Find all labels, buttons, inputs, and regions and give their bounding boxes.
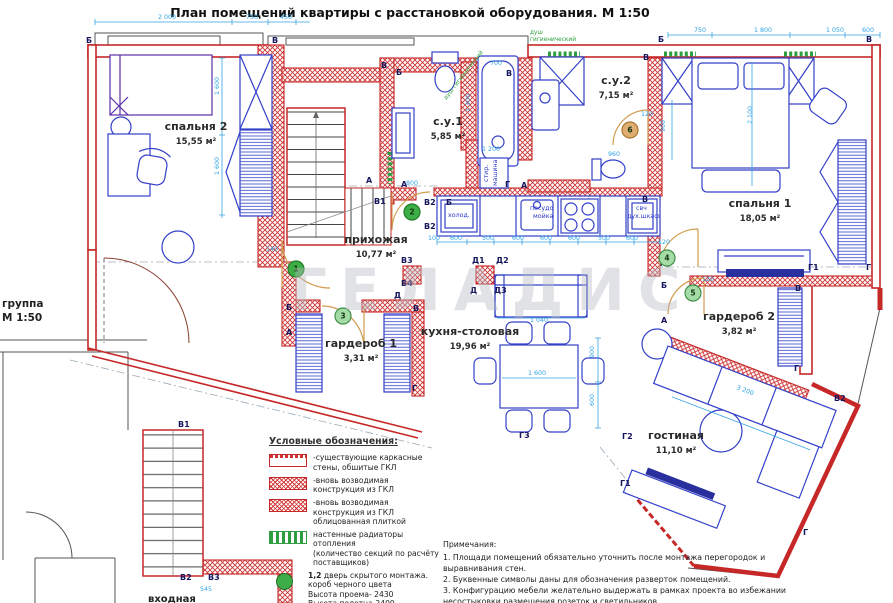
floor-plan-drawing: спальня 215,55 м²с.у.15,85 м²с.у.27,15 м…: [0, 0, 893, 603]
bench-sofa: [495, 275, 587, 317]
door-description: дверь скрытого монтажа. короб черного цв…: [308, 571, 428, 603]
room-name: прихожая: [344, 233, 407, 246]
room-name: спальня 2: [165, 120, 228, 133]
toilet-tank-2: [592, 159, 601, 180]
section-marker: В: [381, 61, 387, 70]
dimension-label: 600: [862, 27, 874, 34]
dimension-label: 600: [540, 235, 552, 242]
legend-item-new-gkl-tiled: -вновь возводимая конструкция из ГКЛ обл…: [269, 498, 445, 526]
fixture-label: душ: [530, 30, 543, 36]
dimension-label: 900: [660, 120, 667, 132]
fixture-label: дух.шкаф: [627, 213, 660, 220]
notes-heading: Примечания:: [443, 540, 805, 551]
fixture-label: свч: [636, 205, 647, 212]
section-marker: Б: [86, 36, 92, 45]
section-marker: А: [286, 328, 293, 337]
room-name: кухня-столовая: [421, 325, 519, 338]
tv-console-living: [623, 463, 728, 529]
section-marker: В1: [178, 420, 190, 429]
fixture-label: гигиенический: [530, 36, 576, 43]
notes: Примечания: 1. Площади помещений обязате…: [443, 540, 805, 603]
wardrobe1-right: [384, 314, 410, 392]
dimension-label: 600: [512, 235, 524, 242]
sink-1: [392, 108, 414, 158]
swatch-existing-wall: [269, 454, 307, 467]
fixture-label: стир.: [483, 165, 490, 182]
dimension-label: 1 600: [214, 77, 221, 95]
section-marker: Б: [286, 303, 292, 312]
dimension-label: 120: [641, 111, 653, 118]
swatch-new-gkl: [269, 477, 307, 490]
section-marker: В: [506, 69, 512, 78]
note-item: 2. Буквенные символы даны для обозначени…: [443, 575, 805, 586]
room-area: 10,77 м²: [356, 250, 397, 260]
floor-plan-page: План помещений квартиры с расстановкой о…: [0, 0, 893, 603]
dimension-label: 750: [694, 27, 706, 34]
section-marker: Г: [803, 528, 808, 537]
door-tag: 6: [622, 122, 638, 138]
door-tag: 5: [685, 285, 701, 301]
door-tag: 1: [288, 261, 304, 277]
dimension-label: 1 050: [826, 27, 844, 34]
section-marker: В: [413, 304, 419, 313]
dimension-label: 600: [626, 235, 638, 242]
legend-heading: Условные обозначения:: [269, 436, 445, 447]
section-marker: В2: [180, 573, 192, 582]
room-name: с.у.1: [433, 115, 463, 128]
balcony-door-arc: [104, 258, 189, 343]
room-area: 15,55 м²: [176, 137, 217, 147]
dimension-label: 1 040: [530, 317, 548, 324]
dimension-label: 960: [608, 151, 620, 158]
dimension-label: 2 000: [158, 14, 176, 21]
dimension-label: 100: [428, 235, 440, 242]
door-badge-dark: [276, 573, 293, 590]
dimension-label: 450: [280, 14, 292, 21]
door-numbers-bold: 1,2: [308, 571, 321, 580]
section-marker: В: [795, 284, 801, 293]
dimension-label: 500: [598, 235, 610, 242]
svg-text:3: 3: [340, 312, 345, 321]
wardrobe-bedroom1: [838, 140, 866, 264]
section-marker: Г1: [808, 263, 819, 272]
section-marker: В: [866, 35, 872, 44]
note-item: 3. Конфигурацию мебели желательно выдерж…: [443, 586, 805, 603]
section-marker: Г: [412, 384, 417, 393]
dimension-label: 800: [406, 180, 418, 187]
section-marker: В2: [424, 198, 436, 207]
section-marker: Б: [658, 35, 664, 44]
room-area: 3,82 м²: [722, 327, 757, 337]
door-tag: 3: [335, 308, 351, 324]
room-area: 18,05 м²: [740, 214, 781, 224]
room-name: с.у.2: [601, 74, 631, 87]
wardrobe-bedroom2: [240, 130, 272, 216]
dimension-label: 1 600: [214, 157, 221, 175]
section-marker: А: [521, 181, 528, 190]
pouf: [162, 231, 194, 263]
legend: Условные обозначения: -существующие карк…: [269, 436, 445, 603]
section-marker: Г1: [620, 479, 631, 488]
dimension-label: 600: [568, 235, 580, 242]
section-marker: В: [643, 53, 649, 62]
section-marker: В2: [424, 222, 436, 231]
dimension-label: 545: [200, 586, 212, 593]
room-area: 5,85 м²: [431, 132, 466, 142]
fixture-label: посудо: [530, 205, 554, 212]
dimension-label: 140: [266, 246, 278, 253]
staircase-main: [287, 108, 391, 245]
dimension-label: 700: [490, 60, 502, 67]
door-tag: 4: [659, 250, 675, 266]
room-name: гардероб 2: [703, 310, 775, 323]
dimension-label: 1 800: [754, 27, 772, 34]
legend-item-text: -вновь возводимая конструкция из ГКЛ: [313, 476, 394, 495]
wardrobe2-column: [778, 288, 802, 366]
svg-text:6: 6: [627, 126, 632, 135]
svg-text:4: 4: [664, 254, 669, 263]
dimension-label: 120: [658, 239, 670, 246]
legend-item-radiators: настенные радиаторы отопления (количеств…: [269, 530, 445, 567]
section-marker: В: [272, 36, 278, 45]
legend-item-text: -существующие каркасные стены, обшитые Г…: [313, 453, 422, 472]
svg-text:5: 5: [690, 289, 695, 298]
toilet-bowl-2: [601, 160, 625, 178]
section-marker: А: [661, 316, 668, 325]
bed-bench: [702, 170, 780, 192]
legend-item-text: -вновь возводимая конструкция из ГКЛ обл…: [313, 498, 406, 526]
staircase-entry: [143, 430, 203, 576]
room-name: гардероб 1: [325, 337, 397, 350]
dimension-label: 1 600: [528, 370, 546, 377]
section-marker: Д: [470, 286, 477, 295]
section-marker: Б: [396, 68, 402, 77]
room-area: 19,96 м²: [450, 342, 491, 352]
section-marker: В4: [401, 279, 413, 288]
dimension-label: 600: [589, 394, 596, 406]
svg-text:1: 1: [293, 265, 298, 274]
room-area: 3,31 м²: [344, 354, 379, 364]
dimension-label: 1 200: [482, 146, 500, 153]
dimension-label: 1 300: [465, 94, 472, 112]
door-tag: 2: [404, 204, 420, 220]
dimension-label: 900: [589, 346, 596, 358]
fixture-label: машина: [492, 159, 499, 186]
legend-door-type-1: 1,2 дверь скрытого монтажа. короб черног…: [269, 571, 445, 603]
dimension-label: 500: [482, 235, 494, 242]
legend-item-new-gkl: -вновь возводимая конструкция из ГКЛ: [269, 476, 445, 495]
room-area: 7,15 м²: [599, 91, 634, 101]
tv-console-bedroom1: [718, 250, 810, 272]
shower-tray: [532, 80, 559, 130]
toilet-tank-1: [432, 52, 458, 63]
dimension-label: 600: [450, 235, 462, 242]
section-marker: Б: [661, 281, 667, 290]
section-marker: Г3: [519, 431, 530, 440]
section-marker: Д1: [472, 256, 485, 265]
legend-door-text: 1,2 дверь скрытого монтажа. короб черног…: [308, 571, 428, 603]
dimension-label: 750: [246, 14, 258, 21]
bed-single: [110, 55, 212, 115]
svg-text:2: 2: [409, 208, 414, 217]
section-marker: Д3: [494, 286, 507, 295]
section-marker: Г: [794, 364, 799, 373]
tv-bedroom1: [726, 269, 804, 277]
dimension-label: 2 100: [747, 106, 754, 124]
dimension-label: 120: [702, 276, 714, 283]
swatch-radiator: [269, 531, 307, 544]
legend-item-existing-walls: -существующие каркасные стены, обшитые Г…: [269, 453, 445, 472]
room-name: спальня 1: [729, 197, 792, 210]
legend-item-text: настенные радиаторы отопления (количеств…: [313, 530, 445, 567]
wardrobe-doors-open: [226, 132, 240, 212]
note-item: 1. Площади помещений обязательно уточнит…: [443, 553, 805, 575]
section-marker: Д: [394, 291, 401, 300]
section-marker: Г: [866, 263, 871, 272]
room-area: 11,10 м²: [656, 446, 697, 456]
fixture-label: холод.: [448, 212, 470, 219]
swatch-new-gkl-tiled: [269, 499, 307, 512]
section-marker: Г: [505, 180, 510, 189]
section-marker: Д2: [496, 256, 509, 265]
coffee-table: [700, 410, 742, 452]
wardrobe1-left: [296, 314, 322, 392]
section-marker: В1: [374, 197, 386, 206]
section-marker: А: [366, 176, 373, 185]
section-marker: Б: [446, 198, 452, 207]
room-name: гостиная: [648, 429, 704, 442]
section-marker: В: [642, 195, 648, 204]
section-marker: В3: [401, 256, 413, 265]
fixture-label: мойка: [533, 212, 553, 220]
section-marker: Г2: [622, 432, 633, 441]
section-marker: В3: [208, 573, 220, 582]
section-marker: В2: [834, 394, 846, 403]
